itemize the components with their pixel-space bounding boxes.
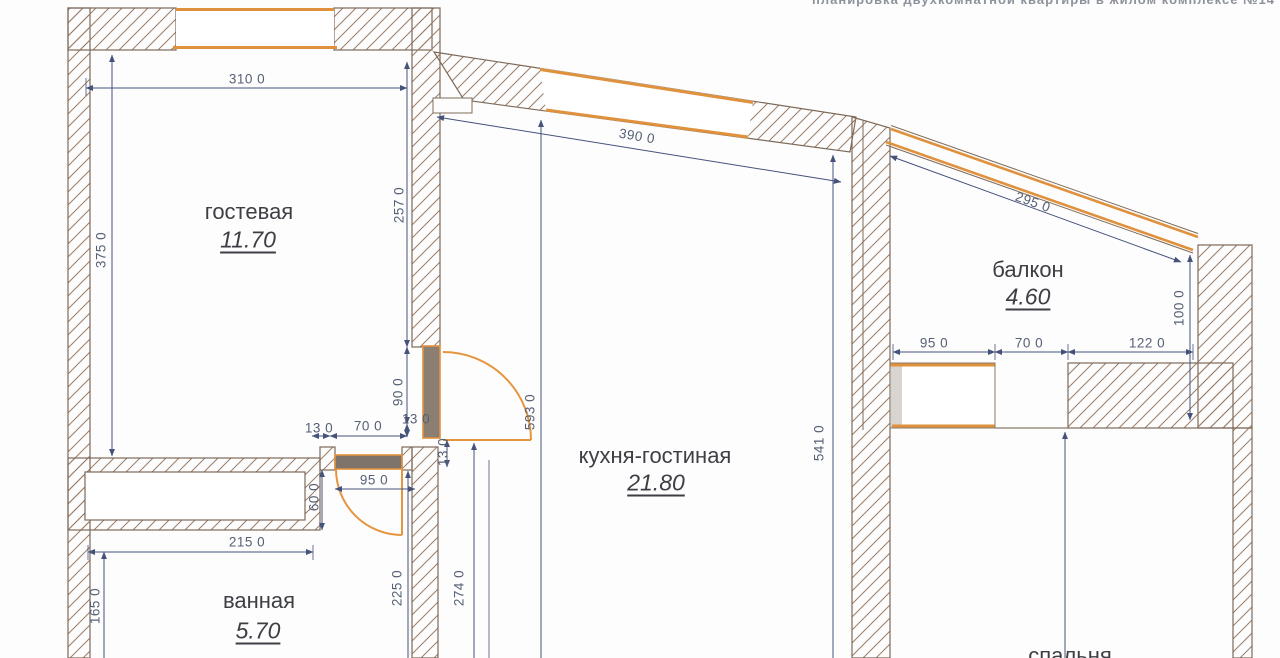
dim-215: 215 0 — [229, 535, 265, 550]
kitchen-door-swing-arc — [443, 352, 531, 440]
room-area-guest: 11.70 — [220, 227, 276, 254]
windows — [173, 10, 1198, 429]
dim-165: 165 0 — [88, 588, 103, 624]
room-label-balcony: балкон — [992, 257, 1063, 283]
bedroom-top-wall — [1068, 363, 1233, 428]
dim-541: 541 0 — [812, 425, 827, 461]
bath-door-wall-left — [320, 447, 335, 470]
kitchen-window-opening — [540, 68, 753, 138]
dim-90: 90 0 — [391, 378, 406, 406]
dim-274: 274 0 — [452, 570, 467, 606]
bath-wall-niche — [85, 472, 305, 520]
balcony-glazing-outer — [891, 129, 1198, 237]
floor-plan: планировка двухкомнатной квартиры в жило… — [0, 0, 1280, 658]
room-area-balcony: 4.60 — [1006, 284, 1051, 311]
kitchen-corner-notch — [433, 98, 472, 113]
guest-window-opening — [176, 10, 334, 48]
outer-left-wall — [68, 8, 90, 658]
top-wall-left — [68, 8, 176, 50]
dim-95-bathdoor: 95 0 — [360, 473, 388, 488]
dim-310: 310 0 — [229, 72, 265, 87]
kitchen-left-wall-lower — [412, 447, 438, 658]
guest-right-wall — [412, 8, 440, 347]
extension-lines — [86, 78, 1193, 658]
dim-122: 122 0 — [1129, 336, 1165, 351]
balcony-window-opening — [902, 364, 995, 427]
dim-13-c: 13 0 — [436, 438, 451, 466]
dim-70-door: 70 0 — [354, 419, 382, 434]
room-label-kitchen: кухня-гостиная — [579, 443, 732, 469]
floor-plan-drawing — [0, 0, 1280, 658]
room-area-bath: 5.70 — [236, 618, 281, 645]
room-area-kitchen: 21.80 — [627, 470, 685, 497]
dim-257: 257 0 — [392, 187, 407, 223]
balcony-window-pier — [890, 363, 902, 428]
dim-225: 225 0 — [390, 570, 405, 606]
dim-13-b: 13 0 — [305, 421, 333, 436]
dim-593: 593 0 — [523, 394, 538, 430]
dim-13-a: 13 0 — [402, 412, 430, 427]
dim-60: 60 0 — [307, 483, 322, 511]
bath-door-wall-right — [402, 447, 412, 470]
bath-door-leaf — [335, 455, 402, 469]
balcony-glazing-outer-edge — [891, 126, 1198, 234]
kitchen-balcony-wall — [852, 117, 890, 658]
cropped-header-text: планировка двухкомнатной квартиры в жило… — [812, 0, 1280, 8]
dim-95-balcony: 95 0 — [920, 336, 948, 351]
room-label-bath: ванная — [223, 588, 295, 614]
outer-right-wall-lower — [1233, 428, 1252, 658]
room-label-bedroom: спальня — [1028, 643, 1112, 658]
dimension-lines — [86, 55, 1193, 658]
cropped-header-text-content: планировка двухкомнатной квартиры в жило… — [812, 0, 1280, 7]
dim-100: 100 0 — [1172, 290, 1187, 326]
dim-70-balcony: 70 0 — [1015, 336, 1043, 351]
dim-375: 375 0 — [94, 232, 109, 268]
room-label-guest: гостевая — [205, 199, 293, 225]
